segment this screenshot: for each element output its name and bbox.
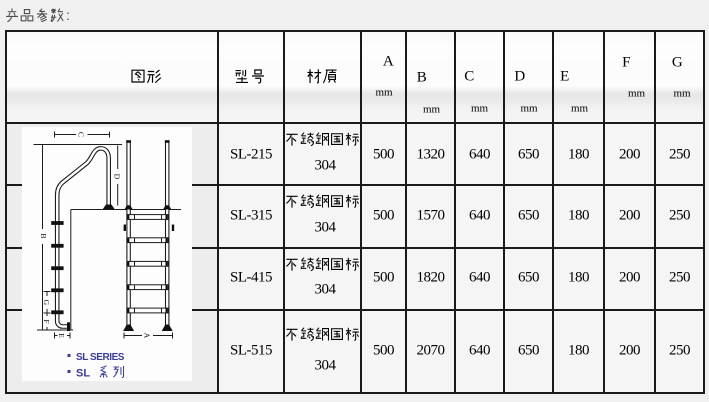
svg-text:E: E (57, 333, 66, 338)
svg-text:D: D (113, 174, 122, 180)
svg-text:A: A (143, 333, 152, 339)
svg-text:G: G (42, 299, 51, 305)
svg-text:SL SERIES: SL SERIES (76, 352, 125, 363)
svg-text:F: F (42, 319, 51, 324)
svg-text:B: B (39, 233, 48, 238)
svg-text:C: C (77, 132, 86, 137)
svg-text:SL: SL (76, 368, 90, 380)
